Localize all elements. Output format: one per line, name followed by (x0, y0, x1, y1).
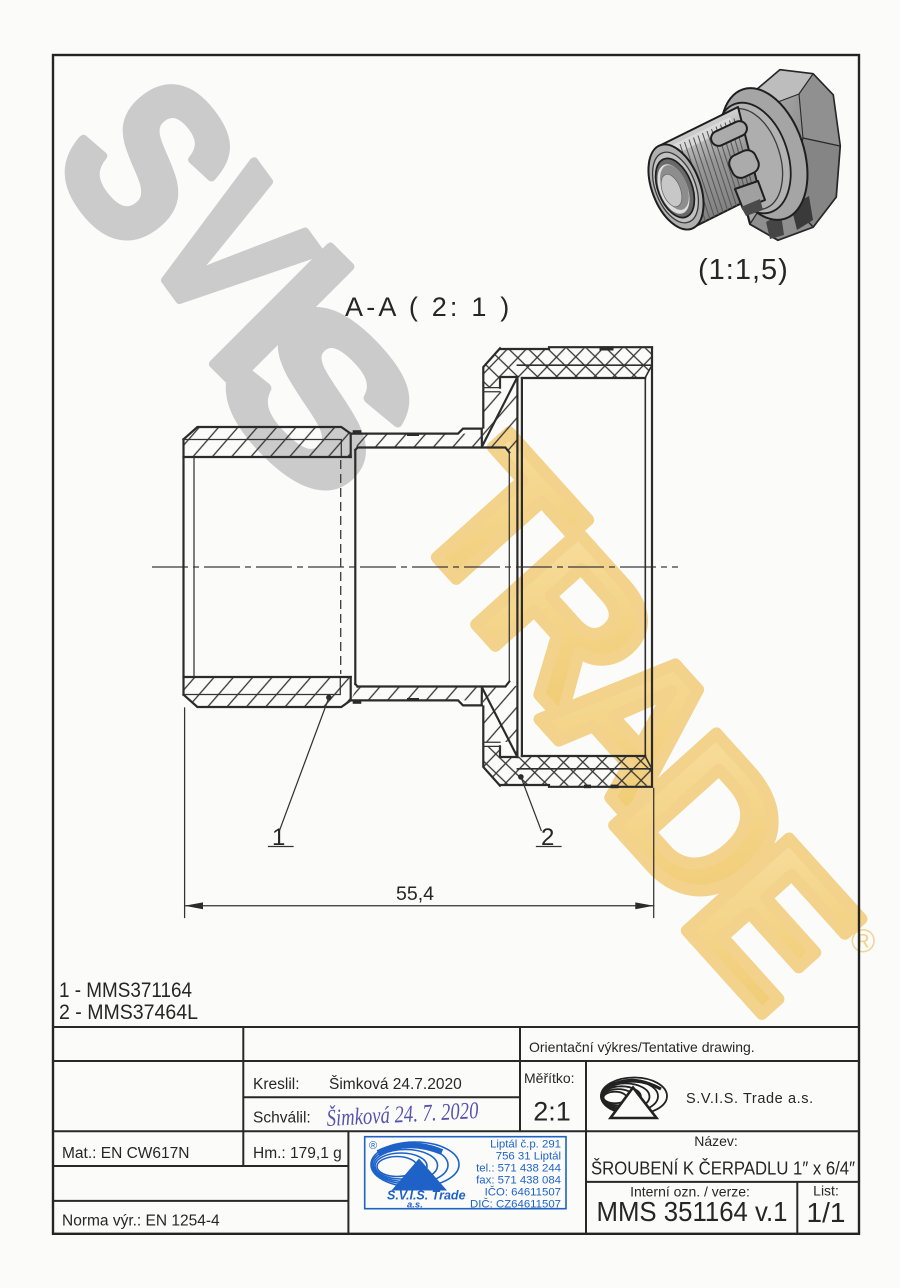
svg-text:Orientační výkres/Tentative dr: Orientační výkres/Tentative drawing. (529, 1039, 755, 1055)
svg-text:a.s.: a.s. (407, 1200, 423, 1211)
svg-text:2 - MMS37464L: 2 - MMS37464L (59, 1001, 198, 1024)
svg-text:Kreslil:: Kreslil: (253, 1076, 300, 1093)
svg-text:1 - MMS371164: 1 - MMS371164 (59, 979, 192, 1002)
svg-text:A-A ( 2: 1 ): A-A ( 2: 1 ) (345, 292, 512, 322)
svg-text:Schválil:: Schválil: (253, 1110, 311, 1127)
svg-text:S.V.I.S. Trade a.s.: S.V.I.S. Trade a.s. (686, 1091, 814, 1107)
svg-text:Šimková 24.7.2020: Šimková 24.7.2020 (329, 1076, 462, 1093)
svg-text:Liptál č.p. 291: Liptál č.p. 291 (490, 1138, 561, 1150)
svg-text:Norma výr.: EN 1254-4: Norma výr.: EN 1254-4 (62, 1213, 220, 1230)
svg-text:tel.: 571 438 244: tel.: 571 438 244 (476, 1162, 561, 1174)
svg-text:Hm.: 179,1 g: Hm.: 179,1 g (253, 1145, 342, 1162)
svg-text:Název:: Název: (694, 1133, 738, 1149)
svg-text:Mat.: EN CW617N: Mat.: EN CW617N (62, 1145, 189, 1162)
svg-text:1/1: 1/1 (807, 1197, 846, 1228)
svg-text:DIČ: CZ64611507: DIČ: CZ64611507 (470, 1197, 561, 1210)
svg-text:756 31 Liptál: 756 31 Liptál (496, 1150, 561, 1162)
svg-text:®: ® (851, 922, 875, 959)
svg-text:S.V.I.S. Trade: S.V.I.S. Trade (387, 1189, 466, 1203)
svg-text:Měřítko:: Měřítko: (524, 1070, 575, 1086)
svg-text:55,4: 55,4 (396, 884, 434, 905)
svg-text:2:1: 2:1 (533, 1097, 571, 1127)
svg-text:ŠROUBENÍ K ČERPADLU 1″ x 6/4″: ŠROUBENÍ K ČERPADLU 1″ x 6/4″ (591, 1158, 855, 1179)
svg-text:®: ® (369, 1140, 377, 1152)
svg-text:(1:1,5): (1:1,5) (698, 254, 789, 286)
svg-text:MMS 351164 v.1: MMS 351164 v.1 (597, 1196, 788, 1227)
svg-text:fax: 571 438 084: fax: 571 438 084 (476, 1174, 561, 1186)
svg-text:IČO: 64611507: IČO: 64611507 (485, 1185, 561, 1198)
